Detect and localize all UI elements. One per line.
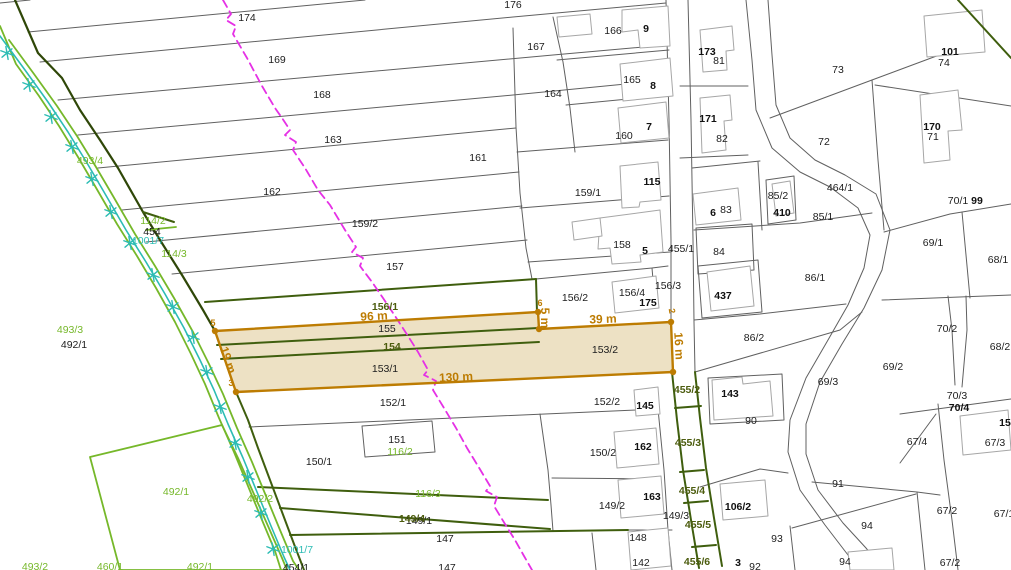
parcel-label: 69/3	[818, 376, 839, 388]
parcel-label: 149/2	[599, 500, 625, 512]
parcel-label: 91	[832, 478, 844, 490]
building-label: 9	[643, 23, 649, 35]
parcel-label: 85/1	[813, 211, 834, 223]
parcel-label: 159/1	[575, 187, 601, 199]
building-label: 106/2	[725, 501, 751, 513]
measurement-label: 96 m	[360, 308, 388, 323]
measurement-label: 16 m	[671, 332, 686, 360]
parcel-label: 67/2	[940, 557, 961, 569]
parcel-label: 156/2	[562, 292, 588, 304]
parcel-label: 151	[388, 434, 406, 446]
parcel-label: 174	[238, 12, 256, 24]
parcel-label: 83	[720, 204, 732, 216]
building-label: 99	[971, 195, 983, 207]
utility-label: 1001/7	[281, 544, 313, 556]
parcel-label: 67/3	[985, 437, 1006, 449]
kn-parcel-label: 492/1	[187, 561, 213, 570]
parcel-label: 454/1	[283, 562, 309, 570]
kn-parcel-label: 116/3	[415, 488, 441, 500]
building-label: 5	[642, 245, 648, 257]
record-parcel-label: 149/4	[399, 513, 425, 525]
parcel-label: 147	[436, 533, 454, 545]
record-parcel-label: 455/2	[674, 384, 700, 396]
parcel-label: 155	[378, 323, 396, 335]
building-label: 6	[710, 207, 716, 219]
cadastral-map-canvas[interactable]: 1761741691681631621671669165816416071611…	[0, 0, 1011, 570]
kn-parcel-label: 116/2	[387, 446, 413, 458]
parcel-label: 164	[544, 88, 562, 100]
parcel-label: 68/1	[988, 254, 1009, 266]
parcel-label: 157	[386, 261, 404, 273]
utility-star-markers	[1, 47, 279, 556]
parcel-label: 84	[713, 246, 725, 258]
building-label: 70/4	[949, 402, 970, 414]
building-label: 437	[714, 290, 732, 302]
building-label: 163	[643, 491, 661, 503]
building-label: 3	[735, 557, 741, 569]
parcel-label: 74	[938, 57, 950, 69]
parcel-label: 72	[818, 136, 830, 148]
vertex-label: 2	[667, 308, 678, 315]
building-label: 8	[650, 80, 656, 92]
parcel-label: 142	[632, 557, 650, 569]
parcel-label: 94	[839, 556, 851, 568]
parcel-label: 165	[623, 74, 641, 86]
parcel-label: 455/1	[668, 243, 694, 255]
parcel-label: 153/1	[372, 363, 398, 375]
parcel-label: 73	[832, 64, 844, 76]
kn-parcel-label: 493/3	[57, 324, 83, 336]
parcel-label: 169	[268, 54, 286, 66]
parcel-label: 159/2	[352, 218, 378, 230]
parcel-label: 160	[615, 130, 633, 142]
parcel-label: 176	[504, 0, 522, 11]
parcel-label: 68/2	[990, 341, 1011, 353]
parcel-label: 90	[745, 415, 757, 427]
cadastral-map-viewport[interactable]: 1761741691681631621671669165816416071611…	[0, 0, 1011, 570]
building-label: 410	[773, 207, 791, 219]
kn-parcel-label: 492/1	[163, 486, 189, 498]
parcel-label: 166	[604, 25, 622, 37]
parcel-label: 82	[716, 133, 728, 145]
parcel-label: 67/1	[994, 508, 1011, 520]
parcel-label: 70/1	[948, 195, 969, 207]
parcel-label: 153/2	[592, 344, 618, 356]
parcel-label: 94	[861, 520, 873, 532]
record-parcel-label: 455/6	[684, 556, 710, 568]
building-label: 162	[634, 441, 652, 453]
measurement-label: 130 m	[439, 369, 474, 385]
parcel-label: 69/1	[923, 237, 944, 249]
parcel-label: 163	[324, 134, 342, 146]
parcel-label: 150/2	[590, 447, 616, 459]
parcel-label: 156/3	[655, 280, 681, 292]
parcel-label: 161	[469, 152, 487, 164]
utility-line	[0, 36, 290, 570]
boundary-dashed-line	[223, 0, 532, 570]
vertex-label: 6	[537, 298, 542, 308]
parcel-label: 147	[438, 562, 456, 570]
parcel-boundaries	[0, 0, 1011, 570]
kn-parcel-label: 114/3	[161, 248, 187, 260]
parcel-label: 167	[527, 41, 545, 53]
parcel-label: 85/2	[768, 190, 789, 202]
kn-parcel-label: 460/1	[97, 561, 123, 570]
utility-label: 1001/7	[132, 235, 164, 247]
parcel-label: 148	[629, 532, 647, 544]
building-label: 15	[999, 417, 1011, 429]
parcel-label: 92	[749, 561, 761, 570]
measurement-label: 5 m	[538, 308, 552, 329]
building-label: 115	[644, 176, 661, 188]
parcel-label: 93	[771, 533, 783, 545]
parcel-label: 152/1	[380, 397, 406, 409]
kn-parcel-label: 492/2	[247, 493, 273, 505]
parcel-label: 67/4	[907, 436, 928, 448]
parcel-label: 149/3	[663, 510, 689, 522]
record-parcel-boundaries	[15, 0, 1011, 570]
record-parcel-label: 455/4	[679, 485, 705, 497]
building-label: 7	[646, 121, 652, 133]
building-label: 145	[636, 400, 654, 412]
building-label: 175	[639, 297, 657, 309]
parcel-label: 86/2	[744, 332, 765, 344]
parcel-label: 67/2	[937, 505, 958, 517]
parcel-label: 168	[313, 89, 331, 101]
parcel-label: 71	[927, 131, 939, 143]
record-parcel-label: 154	[383, 341, 401, 353]
parcel-label: 70/3	[947, 390, 968, 402]
parcel-label: 158	[613, 239, 631, 251]
parcel-label: 152/2	[594, 396, 620, 408]
record-parcel-label: 455/3	[675, 437, 701, 449]
building-label: 143	[721, 388, 739, 400]
vertex-label: 3	[228, 378, 233, 388]
vertex-label: 5	[210, 318, 215, 328]
parcel-label: 464/1	[827, 182, 853, 194]
measurement-label: 39 m	[589, 312, 617, 327]
building-label: 171	[699, 113, 717, 125]
parcel-label: 86/1	[805, 272, 826, 284]
parcel-label: 492/1	[61, 339, 87, 351]
parcel-label: 81	[713, 55, 725, 67]
kn-parcel-label: 493/4	[77, 155, 103, 167]
kn-parcel-label: 493/2	[22, 561, 48, 570]
map-labels: 1761741691681631621671669165816416071611…	[22, 0, 1011, 570]
parcel-label: 69/2	[883, 361, 904, 373]
parcel-label: 150/1	[306, 456, 332, 468]
parcel-label: 162	[263, 186, 281, 198]
parcel-label: 70/2	[937, 323, 958, 335]
